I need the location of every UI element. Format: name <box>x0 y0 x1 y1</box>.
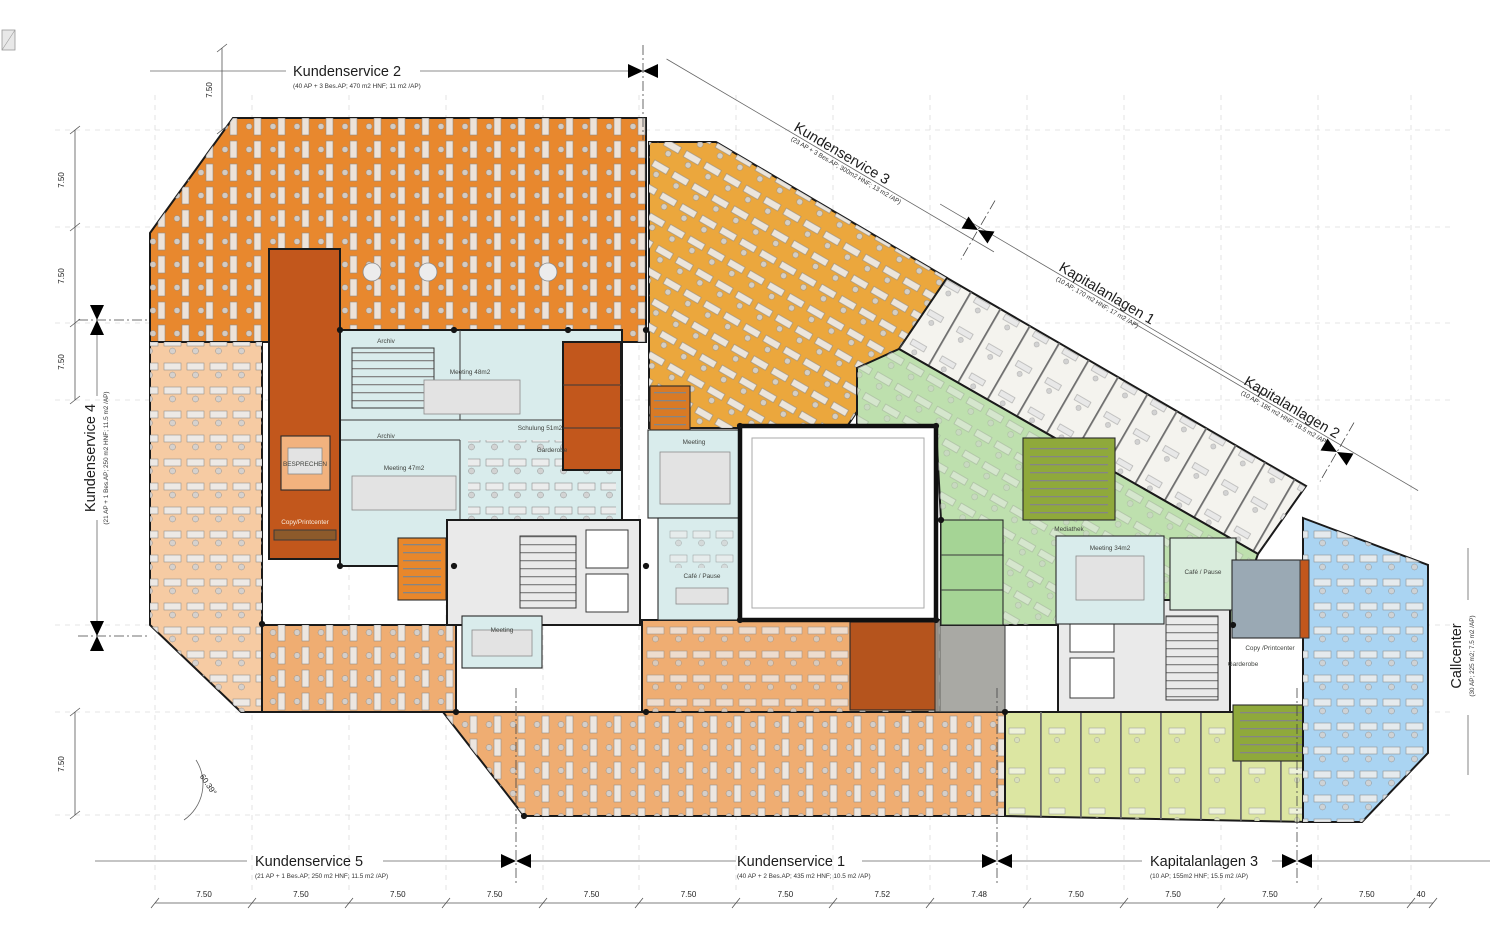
label-cafe-right: Café / Pause <box>1185 569 1222 576</box>
angle-value: 60.39° <box>198 772 218 796</box>
mediathek-shelves <box>1030 444 1108 514</box>
dimension-value: 7.50 <box>57 268 66 284</box>
dimension-value: 7.50 <box>1068 890 1084 899</box>
desks-ks2 <box>150 118 646 342</box>
copy-right-orange-bar <box>1300 560 1309 638</box>
core-left-wc <box>586 574 628 612</box>
label-archiv-top: Archiv <box>377 338 396 345</box>
zone-sublabel-ks1: (40 AP + 2 Bes.AP; 435 m2 HNF; 10.5 m2 /… <box>737 873 871 880</box>
label-besprechen: BESPRECHEN <box>283 461 327 468</box>
meeting34-table <box>1076 556 1144 600</box>
dimension-value: 7.50 <box>196 890 212 899</box>
dimension-chain-bottom: 40 7.507.507.507.507.507.507.507.527.487… <box>151 890 1437 908</box>
zone-label-ks2: Kundenservice 2 <box>293 64 401 80</box>
atrium <box>740 426 936 620</box>
zone-label-ks5: Kundenservice 5 <box>255 854 363 870</box>
dark-rooms-right <box>563 342 621 470</box>
zone-label-ks4: Kundenservice 4 <box>83 404 99 512</box>
floor-plan-sheet: Archiv Meeting 48m2 Archiv Meeting 47m2 … <box>0 0 1500 938</box>
label-meeting34: Meeting 34m2 <box>1090 545 1131 552</box>
zone-label-kap3: Kapitalanlagen 3 <box>1150 854 1258 870</box>
zone-label-kap2: Kapitalanlagen 2 <box>1241 374 1342 443</box>
dimension-value-end: 40 <box>1417 890 1426 899</box>
kap3-stair-stripes <box>1240 710 1302 756</box>
zone-sublabel-ks4: (21 AP + 1 Bes.AP; 250 m2 HNF; 11.5 m2 /… <box>103 391 110 524</box>
dimension-value: 7.50 <box>390 890 406 899</box>
desks-ks5-band <box>262 625 456 712</box>
cafe-center-counter <box>676 588 728 604</box>
green-cell-offices <box>941 520 1003 625</box>
label-cafe-center: Café / Pause <box>684 573 721 580</box>
label-meeting48: Meeting 48m2 <box>450 369 491 376</box>
dimension-value: 7.50 <box>778 890 794 899</box>
zone-sublabel-kap3: (10 AP; 155m2 HNF; 15.5 m2 /AP) <box>1150 873 1248 880</box>
dimension-value: 7.50 <box>1359 890 1375 899</box>
label-meeting-left: Meeting <box>491 627 514 634</box>
dark-room-strip <box>269 249 340 559</box>
label-meeting-center: Meeting <box>683 439 706 446</box>
label-schulung: Schulung 51m2 <box>518 425 563 432</box>
dimension-value: 7.50 <box>487 890 503 899</box>
stair-orange-steps <box>403 543 441 595</box>
dimension-value: 7.50 <box>681 890 697 899</box>
zone-label-kap1: Kapitalanlagen 1 <box>1056 260 1157 329</box>
dimension-value: 7.50 <box>293 890 309 899</box>
room-meeting-brown-right <box>850 622 938 710</box>
dimension-value: 7.48 <box>971 890 987 899</box>
label-archiv-bottom: Archiv <box>377 433 396 440</box>
archive-shelves-top <box>352 348 434 408</box>
meeting-center-table <box>660 452 730 504</box>
core-right-stair <box>1166 616 1218 700</box>
core-left-elevator <box>586 530 628 568</box>
label-copy-left: Copy/Printcenter <box>281 519 329 526</box>
zone-sublabel-ks5: (21 AP + 1 Bes.AP; 250 m2 HNF; 11.5 m2 /… <box>255 873 388 880</box>
label-meeting47: Meeting 47m2 <box>384 465 425 472</box>
dimension-top-left: 7.50 <box>205 44 227 134</box>
desks-callcenter <box>1303 518 1428 822</box>
room-gray-ks1 <box>935 620 1005 712</box>
label-garderobe-left: Garderobe <box>537 447 568 454</box>
label-mediathek: Mediathek <box>1054 526 1084 533</box>
core-left-stair <box>520 536 576 608</box>
dimension-value: 7.52 <box>875 890 891 899</box>
dimension-value: 7.50 <box>1262 890 1278 899</box>
meeting47-table <box>352 476 456 510</box>
dimension-value: 7.50 <box>57 756 66 772</box>
sheet-corner-mark <box>2 30 15 50</box>
dimension-value: 7.50 <box>57 172 66 188</box>
zone-label-callcenter: Callcenter <box>1449 623 1465 688</box>
copy-counter-left <box>274 530 336 540</box>
label-copy-right: Copy /Printcenter <box>1245 645 1295 652</box>
core-right-wc2 <box>1070 658 1114 698</box>
cafe-center-seats <box>668 528 736 568</box>
label-garderobe-right: Garderobe <box>1228 661 1259 668</box>
zone-label-ks1: Kundenservice 1 <box>737 854 845 870</box>
zone-sublabel-ks2: (40 AP + 3 Bes.AP; 470 m2 HNF; 11 m2 /AP… <box>293 83 421 90</box>
dimension-chain-left: 7.50 7.50 7.50 7.50 <box>57 126 80 819</box>
dimension-value: 7.50 <box>1165 890 1181 899</box>
dimension-value: 7.50 <box>57 354 66 370</box>
dimension-value: 7.50 <box>584 890 600 899</box>
desks-bottom-strip <box>443 712 1005 816</box>
angle-annotation: 60.39° <box>184 760 218 820</box>
desks-ks4 <box>150 342 262 712</box>
dimension-value: 7.50 <box>205 82 214 98</box>
zone-sublabel-callcenter: (30 AP; 225 m2; 7.5 m2 /AP) <box>1469 615 1476 696</box>
copy-right-room <box>1232 560 1308 638</box>
meeting48-table <box>424 380 520 414</box>
